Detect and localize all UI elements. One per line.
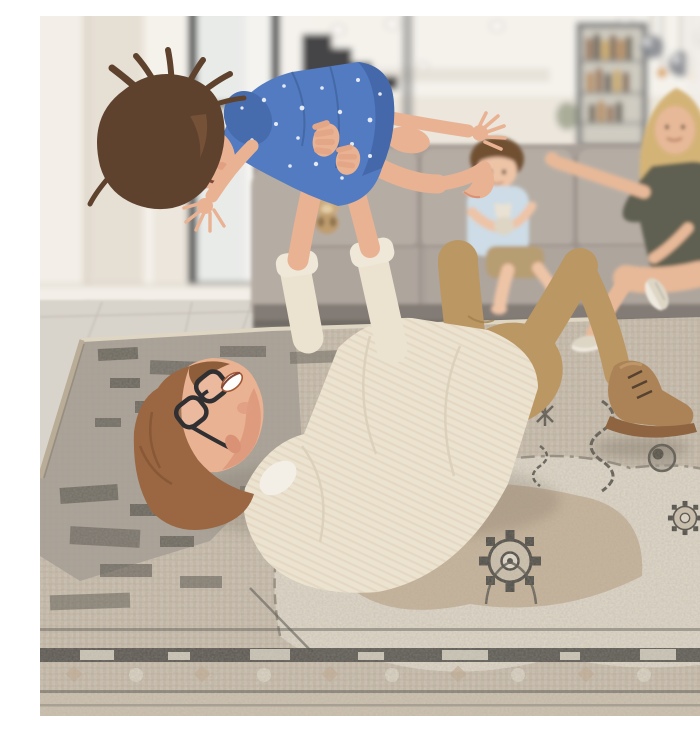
warm-cast-overlay xyxy=(40,16,700,716)
photo-canvas xyxy=(40,16,700,716)
family-living-room-photo: Lifestyle photo: a father lies on his ba… xyxy=(40,16,700,716)
